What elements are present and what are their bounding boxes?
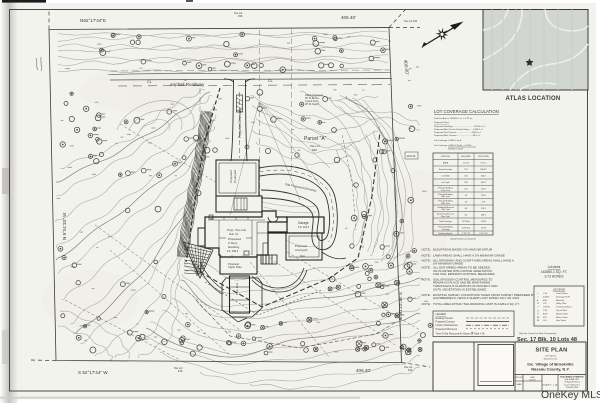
svg-text:F.F. 159.2: F.F. 159.2 [227,249,239,253]
svg-text:Asphalt Roadway: Asphalt Roadway [170,82,205,87]
svg-text:Front Yard: Front Yard [441,189,450,192]
svg-text:10% Max: 10% Max [462,221,470,223]
svg-text:CL: CL [268,79,273,83]
svg-text:Garage: Garage [298,221,309,225]
svg-text:Proposed Pool Terrace.........: Proposed Pool Terrace...................… [434,131,481,134]
svg-text:Dwelling: Dwelling [228,245,240,249]
svg-text:8.0% Max: 8.0% Max [462,228,470,230]
svg-text:L.S. & P.E., P.C.: L.S. & P.E., P.C. [565,379,580,381]
svg-text:S 52°17'44" W: S 52°17'44" W [78,370,108,375]
svg-text:Existing Contour: Existing Contour [436,317,454,320]
svg-text:M.H.: M.H. [543,300,548,302]
svg-text:Utility Pole: Utility Pole [556,302,567,305]
svg-text:680.09': 680.09' [480,169,487,171]
svg-text:Catch Basin: Catch Basin [556,292,569,295]
svg-text:162560.1 SQ. FT.: 162560.1 SQ. FT. [541,270,568,274]
svg-text:LEGEND: LEGEND [436,312,447,316]
svg-text:SITE PLAN: SITE PLAN [535,348,567,354]
svg-text:NOTE:: NOTE: [422,302,431,306]
svg-text:NOTE:: NOTE: [422,277,431,281]
svg-text:O.H.W.: O.H.W. [543,307,550,309]
svg-text:OneKey MLS: OneKey MLS [541,390,600,401]
svg-text:Lot Coverage = 8435.2 Sq.Ft.: Lot Coverage = 8435.2 Sq.Ft. = 5.19% [434,144,472,147]
svg-text:#12: #12 [408,368,413,372]
svg-text:Locust Valley, N.Y.: Locust Valley, N.Y. [564,383,581,386]
svg-text:406.4': 406.4' [481,176,487,178]
svg-text:D.M.H.: D.M.H. [543,296,550,298]
svg-text:NOTE:: NOTE: [422,254,431,258]
svg-text:LOT COVERAGE CALCULATION: LOT COVERAGE CALCULATION [434,109,499,114]
svg-text:Tax Lot #11: Tax Lot #11 [404,19,418,23]
svg-text:213.6': 213.6' [481,208,487,210]
svg-text:Lot Depth: Lot Depth [441,181,449,184]
svg-text:Gar. Fl.: Gar. Fl. [229,232,239,236]
svg-text:LEGEND: LEGEND [553,288,566,292]
svg-text:Proposed Driveway: Proposed Driveway [238,108,242,138]
svg-text:Courtyard: Courtyard [233,169,237,183]
svg-text:Parcel "A": Parcel "A" [304,136,327,142]
svg-text:U.P.: U.P. [543,303,547,305]
svg-text:UNTIL VEGETATION IS ESTABLISHE: UNTIL VEGETATION IS ESTABLISHED [433,287,487,291]
svg-text:(Nassau County Tax Map Designa: (Nassau County Tax Map Designation) [519,332,557,335]
svg-text:Proposed Contour: Proposed Contour [436,321,456,324]
svg-text:Total Coverage: Total Coverage [439,220,452,223]
svg-text:Manhole: Manhole [556,300,565,302]
svg-text:of Property: of Property [545,355,557,358]
svg-text:MAM: MAM [517,383,522,386]
svg-text:162560.1 Sq.Ft.: 162560.1 Sq.Ft. [448,148,464,151]
svg-text:Limits of Disturbance: Limits of Disturbance [436,324,459,327]
svg-text:516-609-3333: 516-609-3333 [566,387,579,389]
svg-text:NOTE:: NOTE: [422,266,431,270]
svg-text:AREA: AREA [443,162,449,165]
svg-text:⊕: ⊕ [537,319,539,322]
svg-text:DRN. BY: DRN. BY [515,377,523,379]
svg-text:Bottom Wall: Bottom Wall [556,312,568,315]
svg-text:406.40': 406.40' [356,368,371,373]
svg-text:Building Heights: Building Heights [439,232,453,235]
svg-text:Upper Patio: Upper Patio [228,265,242,269]
svg-text:LAWN AREAS SHALL HAVE A 2% MIN: LAWN AREAS SHALL HAVE A 2% MINIMUM GRADE [433,254,505,258]
svg-text:Gas Valve: Gas Valve [556,320,567,322]
svg-text:2 1/2 / 28': 2 1/2 / 28' [479,233,488,235]
svg-text:#36: #36 [238,14,243,18]
svg-text:163.21: 163.21 [407,154,417,158]
svg-text:37 Bayville Street: 37 Bayville Street [564,381,580,384]
svg-text:5.19%: 5.19% [481,228,487,230]
svg-text:#40: #40 [312,148,317,152]
svg-text:135.8': 135.8' [481,195,487,197]
svg-text:REQUIRED: REQUIRED [461,156,472,158]
svg-text:Lot Width: Lot Width [442,175,450,178]
svg-text:Total Lot Area = 162560.1 s.f.: Total Lot Area = 162560.1 s.f. = 3.73 ac [434,117,473,120]
svg-text:CL: CL [147,80,152,84]
svg-text:Rear Yard: Rear Yard [441,215,449,218]
svg-text:Courtyard: Courtyard [295,248,308,252]
svg-text:3.73 ac: 3.73 ac [480,163,486,165]
svg-text:ATLAS LOCATION: ATLAS LOCATION [506,96,561,102]
svg-text:ELEVATIONS BASED ON NAVD 88 DA: ELEVATIONS BASED ON NAVD 88 DATUM [433,248,493,252]
svg-text:214.8': 214.8' [481,189,487,191]
svg-text:2 1/2 / 35': 2 1/2 / 35' [462,233,471,235]
svg-text:W.V.: W.V. [543,317,548,319]
svg-text:Proposed Rear Porch & Front St: Proposed Rear Porch & Front Steps.......… [434,128,484,131]
svg-text:HAUSBERRECK, NESS & SHARP LAST: HAUSBERRECK, NESS & SHARP LAST DATED JUL… [433,296,519,300]
svg-text:C.B.: C.B. [543,293,548,295]
svg-text:Situated in the: Situated in the [544,358,559,361]
svg-text:Overhead Wires: Overhead Wires [556,306,573,309]
svg-text:Side Yard: Side Yard [441,208,449,211]
svg-text:Top of Wall: Top of Wall [556,310,567,312]
svg-text:Lot Coverage = 8435.2 sq.ft.: Lot Coverage = 8435.2 sq.ft. [434,139,462,142]
svg-text:Street Frontage: Street Frontage [439,168,452,171]
svg-text:NOTE:: NOTE: [422,248,431,252]
svg-text:Drainage M.H.: Drainage M.H. [556,295,570,298]
svg-text:Pool: Pool [300,255,305,258]
svg-text:S 36°42'16" E: S 36°42'16" E [398,292,403,320]
svg-text:77.8': 77.8' [481,202,486,204]
svg-text:402.9': 402.9' [481,182,487,184]
svg-text:Coverage: Coverage [441,228,449,231]
svg-text:Side Yard: Side Yard [441,195,449,198]
svg-text:TOTAL AREA WITHIN THE DRAINING: TOTAL AREA WITHIN THE DRAINING LIMIT IS … [433,302,520,306]
svg-text:Prop. Pool: Prop. Pool [235,282,239,295]
svg-text:25' W. Depth: 25' W. Depth [305,103,319,106]
svg-text:SCALE 1" = 40': SCALE 1" = 40' [542,384,558,387]
svg-text:Nassau County, N.Y.: Nassau County, N.Y. [531,367,569,372]
svg-text:Lot Area: Lot Area [548,265,561,269]
svg-text:F.F. 161.0: F.F. 161.0 [298,225,310,229]
svg-text:B.W.: B.W. [543,313,548,315]
svg-text:FOR SOIL EROSION CONTROL MEASU: FOR SOIL EROSION CONTROL MEASURES [433,272,495,276]
svg-text:Proposed Misc Terrace.........: Proposed Misc Terrace...................… [434,134,481,137]
svg-text:Trees To Be Removed As Shown X: Trees To Be Removed As Shown X Total = 3… [436,332,486,336]
svg-text:8/21/14: 8/21/14 [530,379,536,381]
svg-text:3.73 ACRES: 3.73 ACRES [544,275,564,279]
svg-text:5.84%: 5.84% [481,221,487,223]
svg-text:T.W.: T.W. [543,310,548,312]
svg-text:Proposed Silt Fence: Proposed Silt Fence [436,328,458,331]
svg-text:Proposed Dwelling.............: Proposed Dwelling.......................… [434,125,486,128]
svg-text:#10: #10 [178,369,183,373]
svg-text:N 9°51'33" W: N 9°51'33" W [62,212,67,240]
svg-text:NOTE:: NOTE: [422,258,431,262]
svg-text:BLACKMAN & PANETTA: BLACKMAN & PANETTA [560,375,584,378]
svg-text:406.40': 406.40' [341,15,356,20]
svg-text:NOTE:: NOTE: [422,293,431,297]
svg-text:G.V.: G.V. [543,320,548,322]
svg-text:Side Yard: Side Yard [441,202,449,205]
svg-text:Proposed Uses: Proposed Uses [434,121,450,124]
svg-text:PROPOSED: PROPOSED [478,156,489,158]
svg-text:(2014) Residence Zoning R3: (2014) Residence Zoning R3 [450,239,476,241]
svg-text:150 sq: 150 sq [463,163,469,165]
svg-text:N62°17'44"E: N62°17'44"E [80,18,106,23]
svg-text:Water Valve: Water Valve [556,316,568,319]
svg-text:180.3': 180.3' [481,215,487,217]
svg-text:EXISTING: EXISTING [441,156,450,158]
